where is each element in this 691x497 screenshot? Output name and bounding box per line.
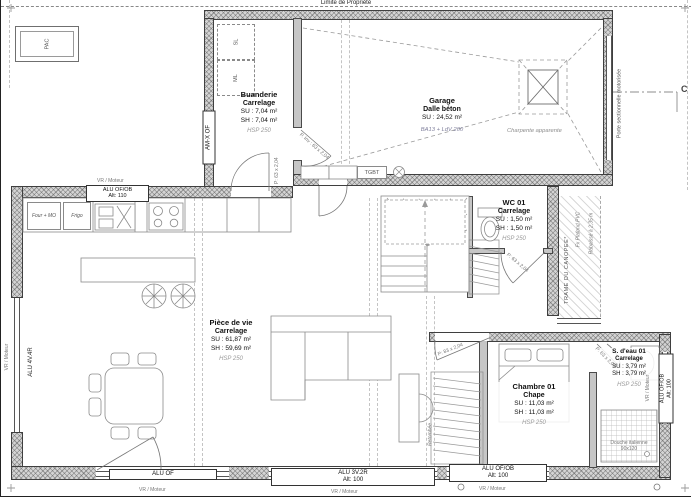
room-hsp: HSP 250 <box>221 128 297 136</box>
room-label-buanderie: Buanderie Carrelage SU : 7,04 m² SH : 7,… <box>221 90 297 136</box>
door-label: P. Inv : 63 x 2,04 <box>298 132 330 161</box>
room-name: Chambre 01 <box>497 382 571 391</box>
door-label: P: 63 x 2,04 <box>505 252 529 274</box>
room-sh: SH : 11,03 m² <box>497 409 571 417</box>
door-label: P: 63 x 2,04 <box>274 157 280 184</box>
section-marker-c: C <box>681 84 688 94</box>
room-name: WC 01 <box>479 198 549 207</box>
garage-roof-note: Charpente apparente <box>507 128 562 134</box>
door-gap <box>435 333 489 341</box>
downspout <box>654 484 660 490</box>
room-sh: SH : 7,04 m² <box>221 117 297 125</box>
room-label-chambre: Chambre 01 Chape SU : 11,03 m² SH : 11,0… <box>497 382 571 428</box>
dryer-label: SL <box>233 39 239 46</box>
wall-chambre-west <box>479 340 488 468</box>
cooktop <box>149 203 183 230</box>
axis <box>349 20 350 174</box>
beam-note: Retombée <box>426 410 435 460</box>
dryer-box: SL <box>217 24 255 60</box>
shower <box>601 410 657 462</box>
room-hsp: HSP 250 <box>497 420 571 428</box>
wall-wc-south <box>467 248 505 254</box>
staircase <box>381 196 469 292</box>
vr-note: VR / Moteur <box>139 487 166 493</box>
room-finish: Carrelage <box>221 99 297 108</box>
axis <box>369 198 370 466</box>
garage-sectional-door <box>606 36 612 160</box>
window-label-bottom-center: ALU 3V.2R Alt: 100 <box>271 468 435 486</box>
property-line-left <box>9 0 10 88</box>
room-label-wc: WC 01 Carrelage SU : 1,50 m² SH : 1,50 m… <box>479 198 549 244</box>
sofa <box>271 316 391 400</box>
tgbt-box: TGBT <box>357 166 387 179</box>
oven-box: Four + MO <box>27 202 61 230</box>
axis <box>377 198 378 466</box>
room-su: SU : 1,50 m² <box>479 216 549 224</box>
vr-note: VR / Moteur <box>479 486 506 492</box>
wall-north <box>204 10 613 20</box>
window-type: ALU 3V.2R <box>274 470 432 477</box>
wall-wc-west <box>467 196 473 298</box>
room-finish: Carrelage <box>479 207 549 216</box>
window-terrace <box>557 318 601 324</box>
wardrobe <box>431 372 483 464</box>
kitchen-sink <box>95 204 135 230</box>
room-hsp: HSP 250 <box>193 356 269 364</box>
window-label-bottom-left: ALU OF <box>109 469 217 480</box>
window-label-bottom-right: ALU OF/OB Alt: 100 <box>449 464 547 482</box>
window-label-bay: ALU 4V.4R <box>24 327 38 397</box>
floor-plan: Limite de Propriété <box>0 0 691 497</box>
vr-note: VR / Moteur <box>97 178 124 184</box>
bar-stool <box>142 284 195 308</box>
room-name: S. d'eau 01 <box>599 348 659 356</box>
room-sh: SH : 1,50 m² <box>479 225 549 233</box>
room-su: SU : 61,87 m² <box>193 336 269 344</box>
room-name: Buanderie <box>221 90 297 99</box>
room-finish: Chape <box>497 391 571 400</box>
window-alt: Alt: 100 <box>452 473 544 480</box>
window-label-sdeau: ALU OF/OB Alt: 100 <box>659 354 674 424</box>
washer-label: ML <box>233 74 239 82</box>
room-sh: SH : 59,69 m² <box>193 345 269 353</box>
window-alt: Alt: 100 <box>666 374 672 403</box>
fridge-box: Frigo <box>63 202 91 230</box>
garage-wall-note: BA13 + LdV 200 <box>401 127 483 135</box>
room-su: SU : 11,03 m² <box>497 400 571 408</box>
window-type: ALU OF/OB <box>660 374 666 403</box>
room-finish: Carrelage <box>193 327 269 336</box>
room-label-garage: Garage Dalle béton SU : 24,52 m² BA13 + … <box>401 96 483 134</box>
pac-label: PAC <box>44 39 50 50</box>
canopy-label: TRAME DU CANOPEE* <box>561 222 573 318</box>
wall-wc-south <box>543 248 553 254</box>
wall-west <box>11 186 23 298</box>
window-alt: Alt: 110 <box>89 193 146 199</box>
door-gap <box>319 175 347 185</box>
pac-unit: PAC <box>15 26 79 62</box>
room-hsp: HSP 250 <box>479 236 549 244</box>
garage-door-label: Porte sectionnelle motorisée <box>614 59 625 149</box>
vr-note: VR / Moteur <box>2 332 12 382</box>
room-su: SU : 7,04 m² <box>221 108 297 116</box>
window-bay <box>14 298 20 432</box>
axis <box>341 20 342 174</box>
kitchen-island <box>81 258 195 282</box>
shower-label: Douche italienne 90x120 <box>603 440 655 452</box>
window-label-amx: AM-X OF <box>203 111 216 165</box>
room-name: Pièce de vie <box>193 318 269 327</box>
room-finish: Dalle béton <box>401 105 483 114</box>
false-ceiling-note: Fx Plafond PVC <box>574 198 583 262</box>
downspout <box>458 484 464 490</box>
room-su: SU : 24,52 m² <box>401 114 483 122</box>
dining-table <box>89 353 163 439</box>
window-type: ALU OF/OB <box>452 466 544 473</box>
shower-size: 90x120 <box>621 446 637 452</box>
property-line-label: Limite de Propriété <box>291 0 401 6</box>
window-label-kitchen: ALU OF/OB Alt: 110 <box>86 185 149 202</box>
window-alt: Alt: 100 <box>274 477 432 484</box>
room-name: Garage <box>401 96 483 105</box>
property-line <box>1 6 691 7</box>
door-gap <box>231 187 271 197</box>
garage-roof-window <box>528 70 558 104</box>
vr-note: VR / Moteur <box>331 489 358 495</box>
vr-note: VR / Moteur <box>643 363 653 413</box>
door-label: P: 83 x 2,04 <box>437 342 464 358</box>
lowered-ceiling-note: Rabaissé à 2,35 m <box>587 201 596 267</box>
property-line-right <box>687 0 688 190</box>
wall-chambre-sdeau <box>589 372 597 468</box>
room-label-piece-de-vie: Pièce de vie Carrelage SU : 61,87 m² SH … <box>193 318 269 364</box>
wall-buanderie-west <box>204 18 214 115</box>
